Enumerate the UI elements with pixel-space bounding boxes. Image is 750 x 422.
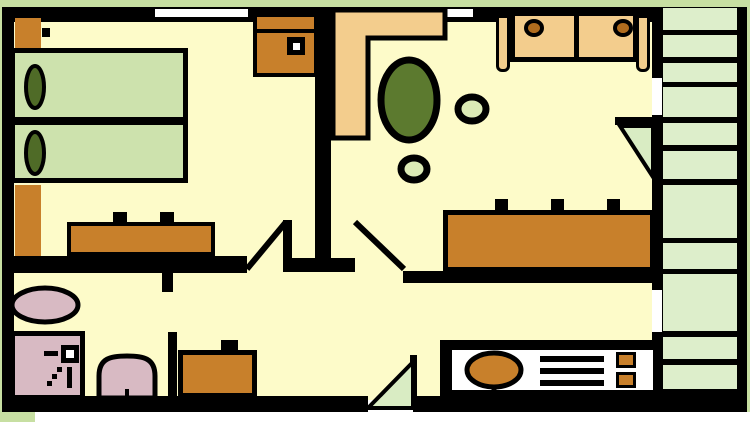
stair-door-lower-opening bbox=[652, 290, 662, 332]
burner-2 bbox=[616, 372, 636, 388]
burner-1 bbox=[616, 352, 636, 368]
hall-cabinet bbox=[178, 350, 257, 398]
stair-tread bbox=[663, 365, 737, 389]
stair-tread bbox=[663, 87, 737, 117]
stair-tread bbox=[663, 243, 737, 269]
shower-spray-dot bbox=[52, 374, 57, 379]
dresser-knob bbox=[113, 212, 127, 222]
stair-landing bbox=[663, 185, 737, 238]
living-room-bottom-wall bbox=[403, 271, 662, 283]
shower-spray-dot bbox=[47, 381, 52, 386]
bedroom-bottom-wall bbox=[2, 256, 247, 273]
dresser-knob bbox=[160, 212, 174, 222]
entry-door-hinge-wall bbox=[410, 355, 417, 398]
sideboard-knob bbox=[551, 199, 564, 210]
drainer-grill-line bbox=[540, 356, 604, 362]
cabinet-divider bbox=[253, 29, 318, 33]
sideboard bbox=[443, 210, 655, 272]
bathroom-wall-lower bbox=[168, 332, 177, 398]
window-1 bbox=[155, 9, 248, 17]
sofa-armrest-right bbox=[636, 15, 650, 72]
drainer-grill-line bbox=[540, 368, 604, 374]
stair-tread bbox=[663, 151, 737, 179]
sofa-cushion-2 bbox=[579, 16, 633, 57]
shower-spray-dot bbox=[57, 367, 62, 372]
central-wall-foot bbox=[283, 258, 355, 272]
cabinet-knob-center bbox=[293, 43, 300, 50]
stair-landing bbox=[663, 274, 737, 331]
bathroom-wall-stub-upper bbox=[162, 272, 173, 292]
bedroom-cabinet bbox=[253, 13, 318, 77]
outer-margin-bottom-left bbox=[0, 412, 35, 422]
drainer-grill-line bbox=[540, 380, 604, 386]
stair-tread bbox=[663, 337, 737, 359]
window-2 bbox=[388, 9, 473, 17]
sideboard-knob bbox=[495, 199, 508, 210]
stair-door-upper-opening bbox=[652, 78, 662, 115]
sofa-cushion-1 bbox=[515, 16, 574, 57]
nightstand-top bbox=[15, 18, 41, 48]
stair-door-stub-wall bbox=[615, 117, 662, 125]
shower-stall bbox=[10, 331, 85, 400]
stair-tread bbox=[663, 8, 737, 30]
bedroom-dresser bbox=[67, 222, 215, 256]
nightstand-bottom bbox=[15, 185, 41, 256]
sideboard-knob bbox=[607, 199, 620, 210]
floor-plan bbox=[0, 0, 750, 422]
sofa-armrest-left bbox=[496, 15, 510, 72]
outside-bottom bbox=[35, 412, 750, 422]
stair-tread bbox=[663, 35, 737, 57]
hall-cabinet-knob bbox=[221, 340, 238, 351]
twin-bed-2 bbox=[15, 125, 183, 178]
shower-icon-dash bbox=[44, 351, 58, 356]
shower-icon-bar bbox=[67, 367, 72, 388]
stair-tread bbox=[663, 63, 737, 82]
headboard-wall-stub bbox=[42, 28, 50, 37]
twin-bed-1 bbox=[15, 53, 183, 117]
shower-head-center bbox=[66, 350, 74, 358]
stair-tread bbox=[663, 123, 737, 145]
